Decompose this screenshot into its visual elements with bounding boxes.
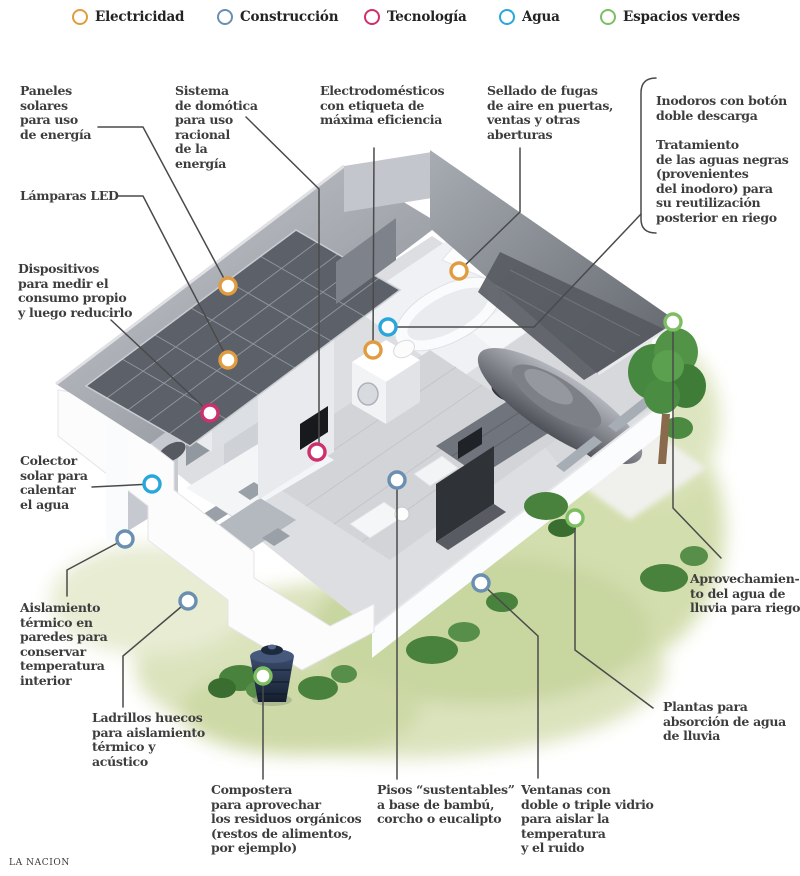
legend-item-tecnologia: Tecnología bbox=[364, 9, 467, 25]
marker-aislamiento-termico bbox=[117, 531, 133, 547]
callout-sellado-fugas: Sellado de fugas de aire en puertas, ven… bbox=[487, 84, 613, 142]
marker-ventanas-vidrio bbox=[473, 575, 489, 591]
legend-label: Construcción bbox=[240, 9, 338, 25]
marker-dispositivos-consumo bbox=[202, 405, 218, 421]
callout-ventanas-vidrio: Ventanas con doble o triple vidrio para … bbox=[521, 783, 654, 856]
bracket-inodoros-tratamiento bbox=[641, 78, 656, 233]
marker-plantas-absorcion bbox=[567, 510, 583, 526]
callout-dispositivos-consumo: Dispositivos para medir el consumo propi… bbox=[18, 262, 132, 320]
marker-aprovechamiento-lluvia bbox=[665, 314, 681, 330]
roof-gap-wall bbox=[344, 152, 432, 212]
callout-paneles-solares: Paneles solares para uso de energía bbox=[20, 84, 91, 142]
marker-sistema-domotica bbox=[309, 444, 325, 460]
legend-label: Agua bbox=[522, 9, 560, 25]
callout-aislamiento-termico: Aislamiento térmico en paredes para cons… bbox=[20, 601, 107, 688]
marker-electrodomesticos bbox=[365, 342, 381, 358]
infographic-sustainable-house: Electricidad Construcción Tecnología Agu… bbox=[0, 0, 800, 876]
callout-plantas-absorcion: Plantas para absorción de agua de lluvia bbox=[663, 700, 786, 744]
legend-label: Electricidad bbox=[95, 9, 184, 25]
marker-compostera bbox=[255, 668, 271, 684]
leader-electrodomesticos bbox=[373, 148, 374, 350]
legend-item-electricidad: Electricidad bbox=[72, 9, 184, 25]
callout-sistema-domotica: Sistema de domótica para uso racional de… bbox=[175, 84, 258, 171]
agua-dot-icon bbox=[499, 9, 515, 25]
callout-aprovechamiento-lluvia: Aprovechamien- to del agua de lluvia par… bbox=[690, 572, 800, 616]
electricidad-dot-icon bbox=[72, 9, 88, 25]
legend-item-construccion: Construcción bbox=[217, 9, 338, 25]
marker-paneles-solares bbox=[220, 278, 236, 294]
callout-ladrillos-huecos: Ladrillos huecos para aislamiento térmic… bbox=[92, 711, 205, 769]
marker-inodoros-tratamiento bbox=[380, 319, 396, 335]
callout-compostera: Compostera para aprovechar los residuos … bbox=[211, 783, 361, 856]
legend-label: Espacios verdes bbox=[623, 9, 740, 25]
legend-item-espacios-verdes: Espacios verdes bbox=[600, 9, 740, 25]
legend-item-agua: Agua bbox=[499, 9, 560, 25]
espacios-verdes-dot-icon bbox=[600, 9, 616, 25]
callout-tratamiento-aguas: Tratamiento de las aguas negras (proveni… bbox=[656, 138, 789, 225]
marker-lamparas-led bbox=[220, 352, 236, 368]
source-credit: LA NACION bbox=[9, 858, 70, 868]
construccion-dot-icon bbox=[217, 9, 233, 25]
marker-sellado-fugas bbox=[451, 263, 467, 279]
legend-label: Tecnología bbox=[387, 9, 467, 25]
marker-ladrillos-huecos bbox=[180, 593, 196, 609]
callout-electrodomesticos: Electrodomésticos con etiqueta de máxima… bbox=[320, 84, 444, 128]
callout-inodoros: Inodoros con botón doble descarga bbox=[656, 94, 787, 123]
callout-colector-solar: Colector solar para calentar el agua bbox=[20, 454, 88, 512]
tecnologia-dot-icon bbox=[364, 9, 380, 25]
callout-lamparas-led: Lámparas LED bbox=[20, 189, 119, 204]
marker-colector-solar bbox=[144, 476, 160, 492]
marker-pisos-sustentables bbox=[389, 472, 405, 488]
callout-pisos-sustentables: Pisos “sustentables” a base de bambú, co… bbox=[377, 783, 515, 827]
